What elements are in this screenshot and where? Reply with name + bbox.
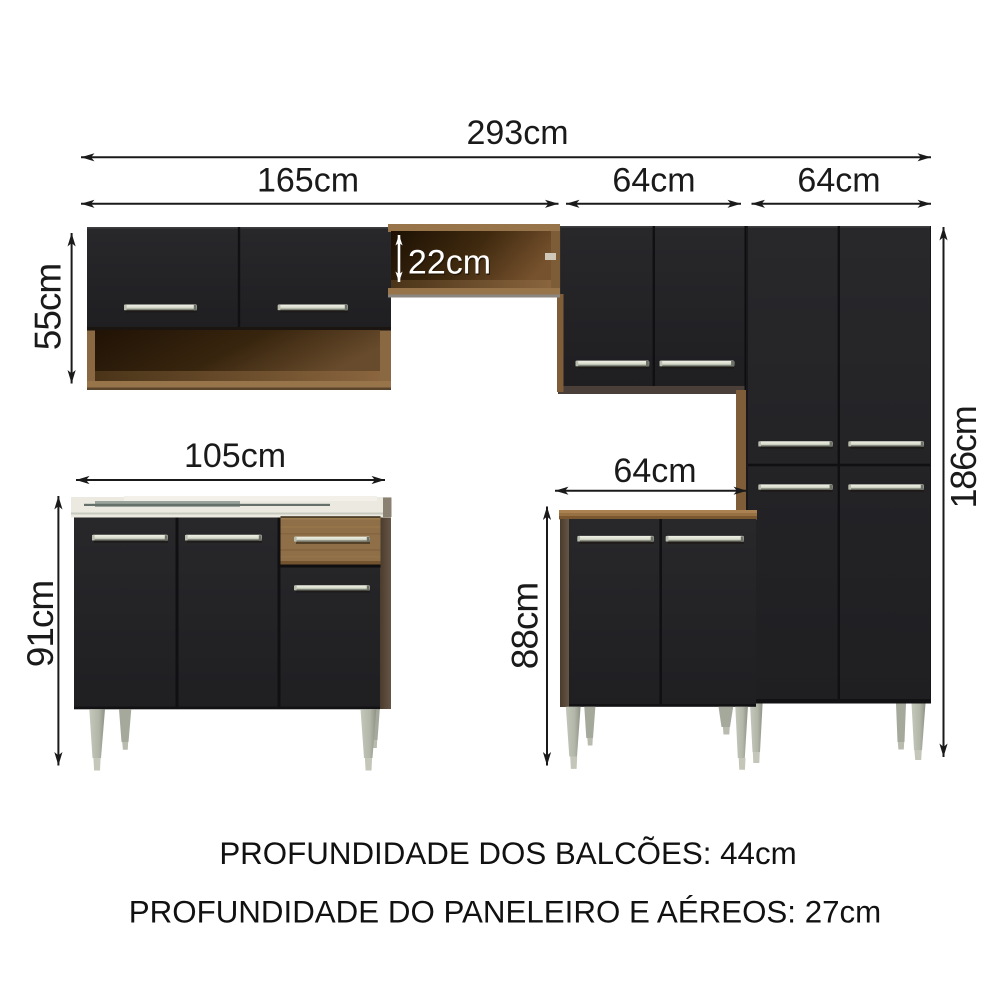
svg-text:64cm: 64cm [612,162,695,200]
svg-text:22cm: 22cm [408,244,491,282]
svg-text:64cm: 64cm [797,162,880,200]
svg-text:64cm: 64cm [613,452,696,490]
svg-text:PROFUNDIDADE DOS BALCÕES: 44cm: PROFUNDIDADE DOS BALCÕES: 44cm [219,836,796,871]
svg-text:55cm: 55cm [28,264,69,350]
svg-text:PROFUNDIDADE DO PANELEIRO E AÉ: PROFUNDIDADE DO PANELEIRO E AÉREOS: 27cm [129,894,881,929]
svg-text:186cm: 186cm [943,406,984,508]
svg-text:88cm: 88cm [505,583,546,669]
svg-text:105cm: 105cm [184,437,286,475]
svg-text:165cm: 165cm [257,162,359,200]
svg-text:91cm: 91cm [20,581,61,667]
svg-text:293cm: 293cm [466,114,568,152]
